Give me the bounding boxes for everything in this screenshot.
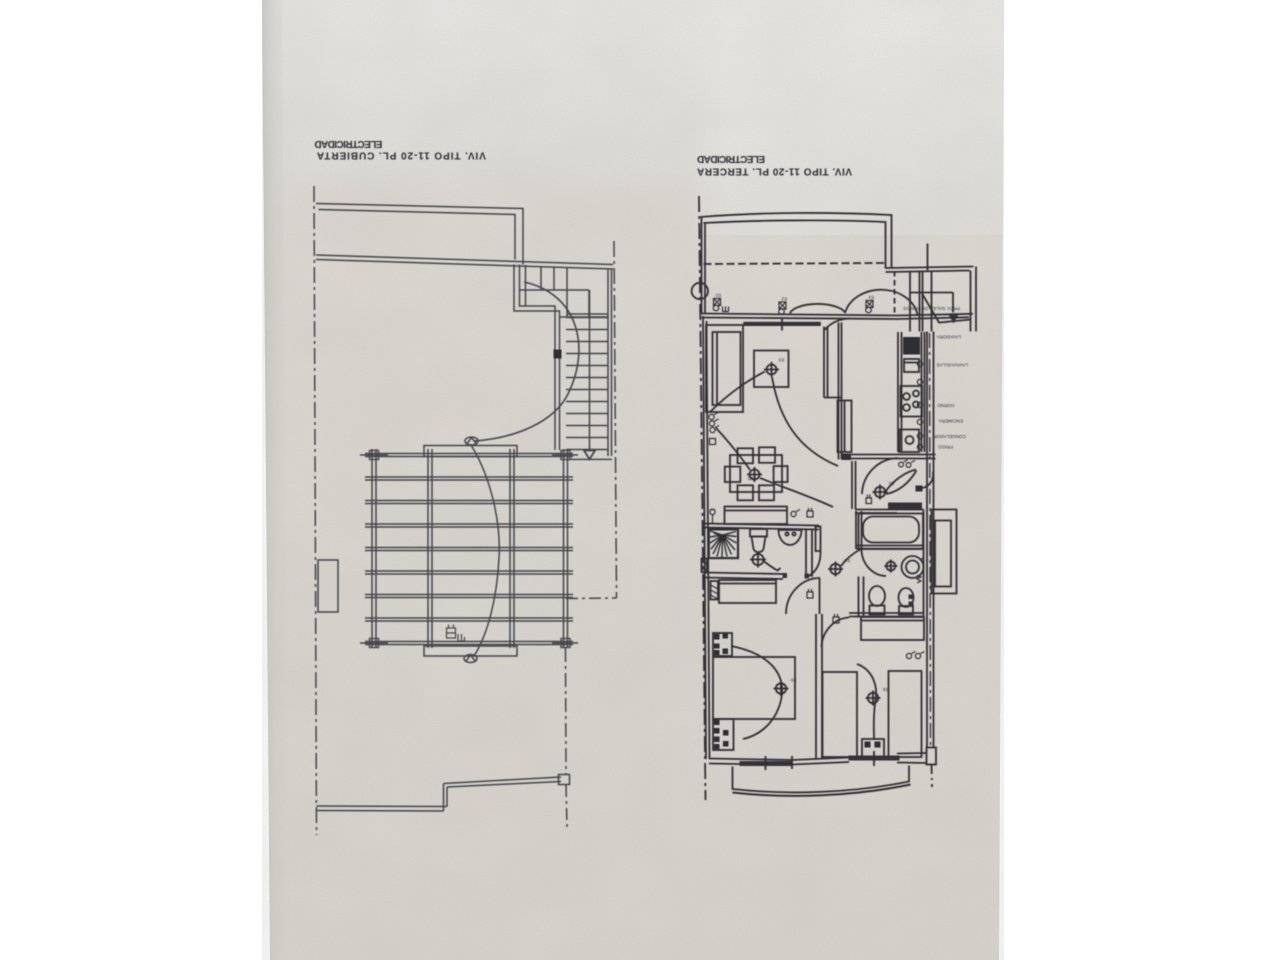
svg-text:LAVADORA: LAVADORA: [936, 335, 961, 340]
svg-text:VIV. TIPO 11-20 PL. CUBIERTA: VIV. TIPO 11-20 PL. CUBIERTA: [317, 149, 486, 160]
svg-text:E6: E6: [882, 687, 888, 692]
svg-text:HORNO: HORNO: [937, 403, 955, 408]
svg-text:LAVAVAJILLAS: LAVAVAJILLAS: [937, 363, 968, 368]
svg-text:E1: E1: [888, 481, 894, 486]
svg-text:ENCIMERA: ENCIMERA: [938, 419, 963, 424]
svg-text:CONGELADOR: CONGELADOR: [933, 434, 966, 439]
svg-text:E3: E3: [778, 358, 784, 363]
svg-text:VIV. TIPO 11-20 PL. TERCERA: VIV. TIPO 11-20 PL. TERCERA: [697, 166, 852, 177]
svg-text:E4: E4: [844, 558, 850, 563]
svg-text:ELECTRICIDAD: ELECTRICIDAD: [314, 138, 382, 149]
svg-text:ELECTRICIDAD: ELECTRICIDAD: [697, 153, 765, 164]
svg-text:E2: E2: [781, 297, 787, 302]
svg-text:PREV. SALIDA DE HUMOS: PREV. SALIDA DE HUMOS: [903, 306, 960, 311]
svg-text:E6: E6: [790, 678, 796, 683]
svg-text:E5: E5: [747, 476, 753, 481]
svg-text:FRIGO.: FRIGO.: [937, 445, 953, 450]
svg-text:E2: E2: [868, 295, 874, 300]
svg-text:E2: E2: [715, 293, 721, 298]
